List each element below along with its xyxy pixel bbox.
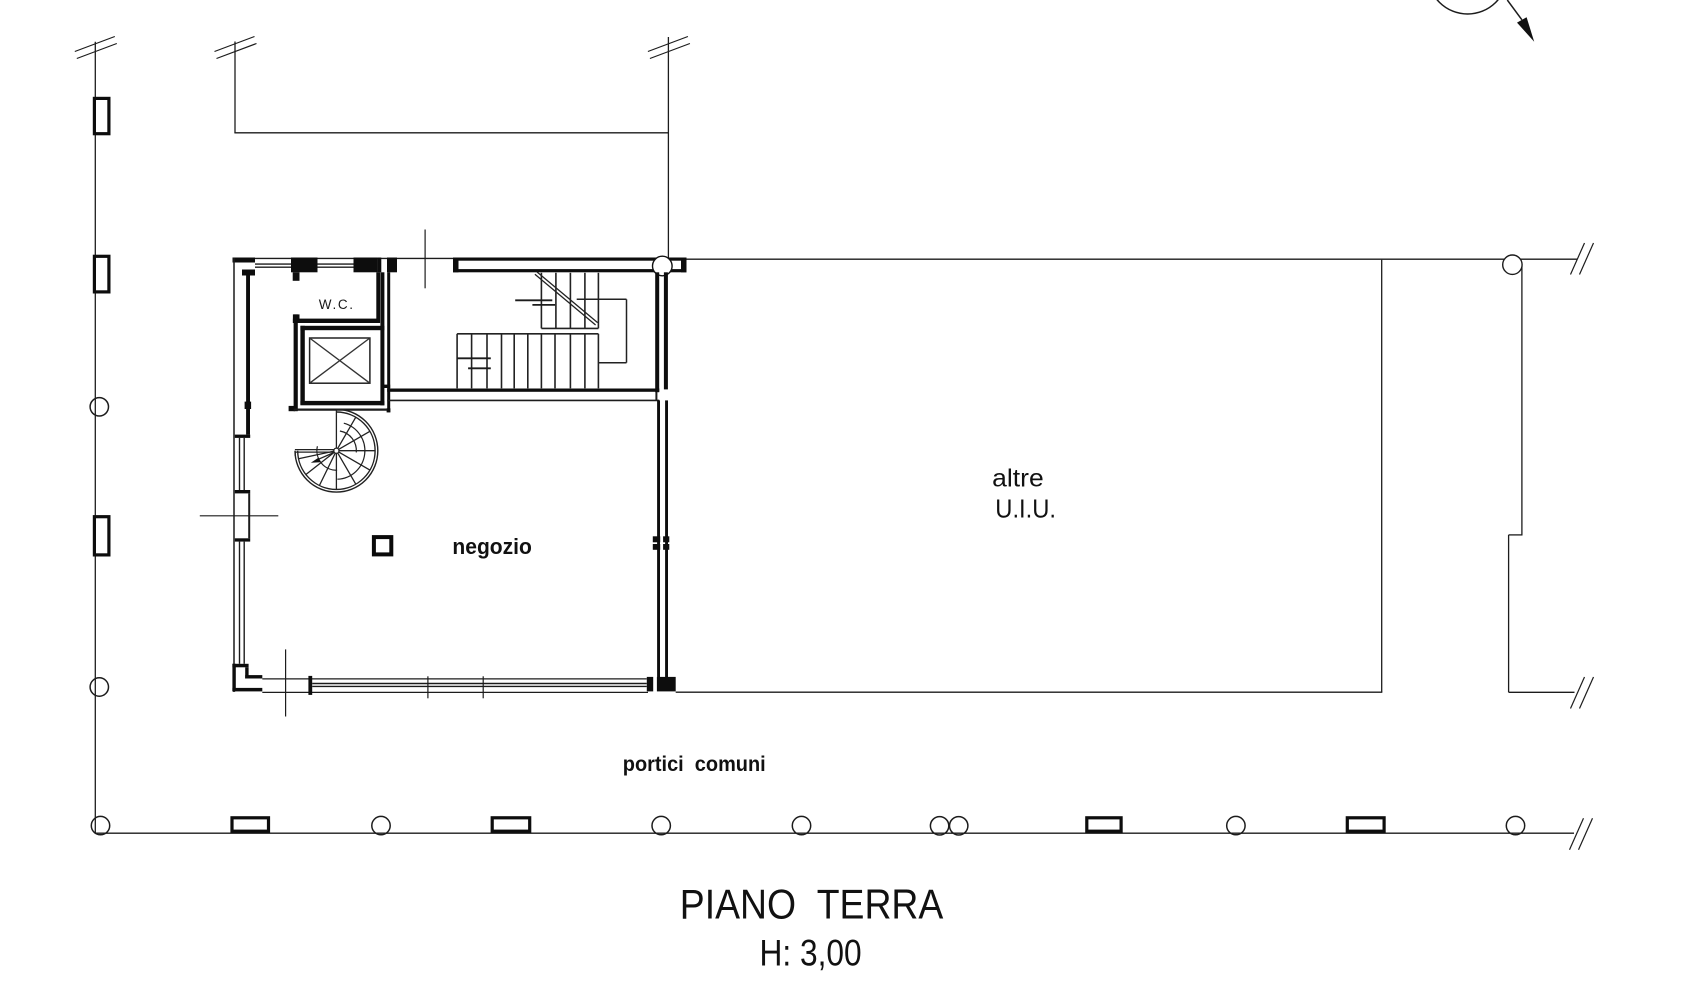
svg-text:negozio: negozio bbox=[452, 534, 532, 559]
svg-text:PIANO TERRA: PIANO TERRA bbox=[680, 880, 944, 927]
svg-text:W.C.: W.C. bbox=[319, 297, 355, 312]
svg-text:altre: altre bbox=[992, 464, 1044, 492]
svg-text:H: 3,00: H: 3,00 bbox=[760, 933, 862, 974]
svg-text:portici comuni: portici comuni bbox=[623, 753, 766, 776]
svg-text:U.I.U.: U.I.U. bbox=[995, 494, 1056, 524]
